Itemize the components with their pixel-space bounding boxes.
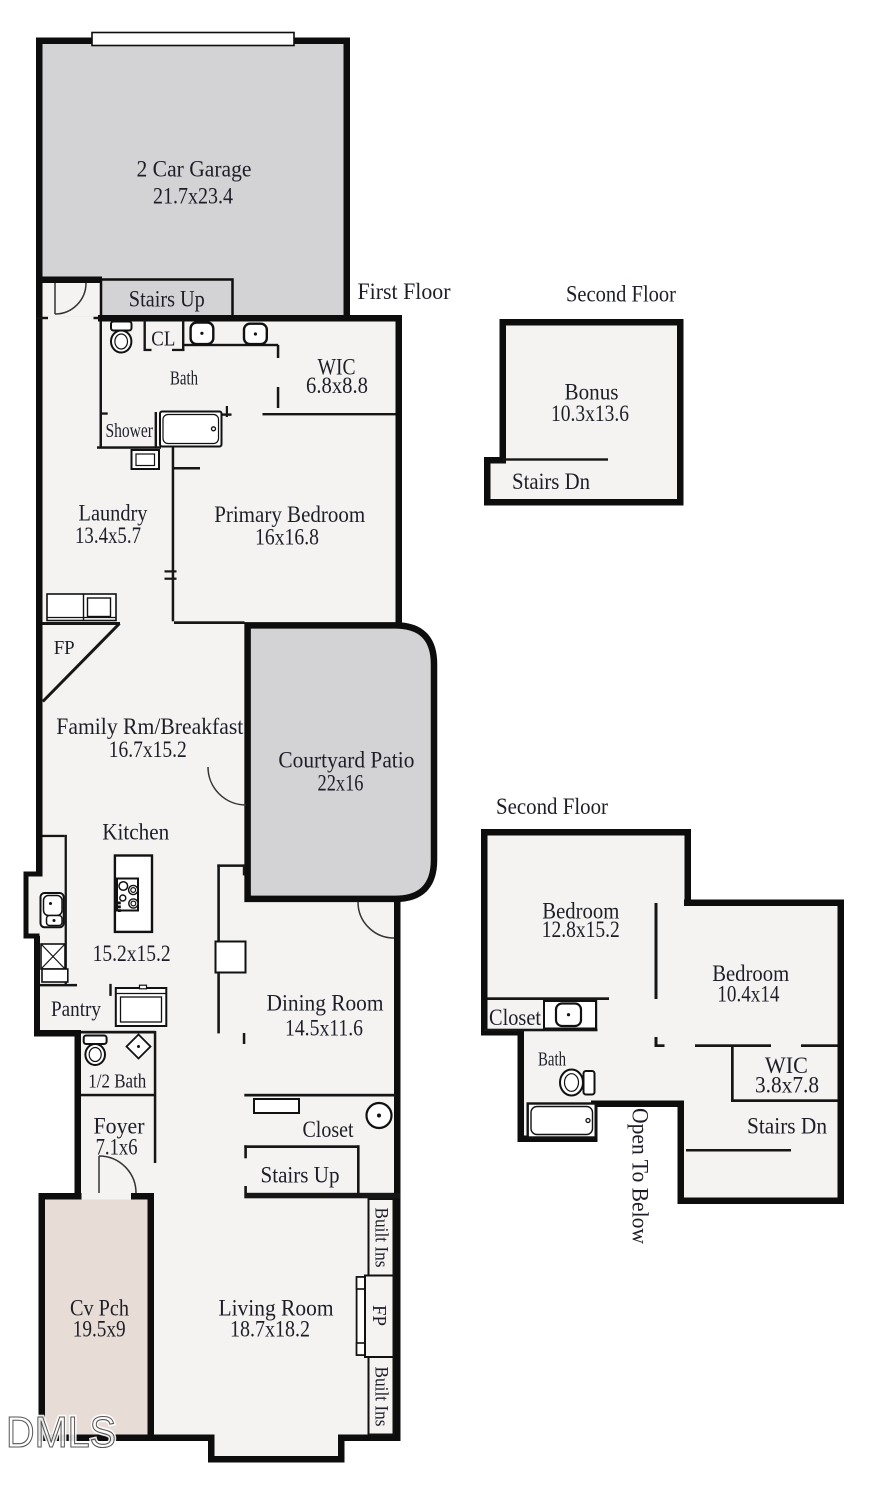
svg-text:Open To Below: Open To Below	[628, 1108, 653, 1244]
svg-text:Stairs Dn: Stairs Dn	[512, 469, 590, 494]
svg-text:Pantry: Pantry	[51, 996, 101, 1021]
svg-text:16.7x15.2: 16.7x15.2	[109, 737, 187, 762]
svg-text:Bath: Bath	[538, 1050, 566, 1071]
svg-text:Second Floor: Second Floor	[496, 794, 608, 819]
svg-text:Built Ins: Built Ins	[371, 1208, 392, 1268]
svg-text:Bath: Bath	[170, 369, 198, 390]
svg-text:21.7x23.4: 21.7x23.4	[153, 184, 233, 209]
svg-text:Family Rm/Breakfast: Family Rm/Breakfast	[56, 714, 244, 739]
svg-text:15.2x15.2: 15.2x15.2	[93, 941, 171, 966]
svg-text:22x16: 22x16	[318, 771, 364, 796]
svg-text:6.8x8.8: 6.8x8.8	[306, 373, 368, 398]
svg-text:1/2 Bath: 1/2 Bath	[88, 1070, 146, 1092]
svg-text:Kitchen: Kitchen	[102, 820, 169, 845]
svg-text:Stairs Dn: Stairs Dn	[747, 1114, 827, 1139]
svg-text:10.3x13.6: 10.3x13.6	[551, 401, 629, 426]
svg-text:Built Ins: Built Ins	[371, 1367, 392, 1427]
svg-text:First Floor: First Floor	[358, 279, 451, 304]
svg-text:Dining Room: Dining Room	[267, 991, 384, 1016]
svg-text:2 Car Garage: 2 Car Garage	[137, 157, 252, 182]
svg-text:Stairs Up: Stairs Up	[261, 1163, 340, 1188]
svg-text:CL: CL	[151, 326, 175, 350]
svg-text:13.4x5.7: 13.4x5.7	[75, 523, 141, 548]
svg-text:19.5x9: 19.5x9	[73, 1317, 126, 1342]
svg-text:Shower: Shower	[105, 421, 153, 442]
svg-text:7.1x6: 7.1x6	[96, 1135, 138, 1160]
svg-text:DMLS: DMLS	[6, 1408, 116, 1457]
svg-text:10.4x14: 10.4x14	[717, 982, 779, 1007]
svg-text:3.8x7.8: 3.8x7.8	[755, 1073, 819, 1098]
svg-text:FP: FP	[368, 1305, 389, 1326]
svg-text:16x16.8: 16x16.8	[255, 525, 319, 550]
svg-text:Stairs Up: Stairs Up	[129, 287, 205, 312]
svg-text:Courtyard Patio: Courtyard Patio	[278, 747, 414, 772]
svg-text:Laundry: Laundry	[79, 501, 148, 526]
svg-text:18.7x18.2: 18.7x18.2	[230, 1317, 310, 1342]
svg-text:Closet: Closet	[303, 1117, 355, 1142]
svg-text:FP: FP	[54, 638, 75, 659]
svg-text:12.8x15.2: 12.8x15.2	[542, 917, 620, 942]
svg-text:Primary Bedroom: Primary Bedroom	[214, 502, 365, 527]
svg-text:14.5x11.6: 14.5x11.6	[285, 1016, 363, 1041]
svg-text:Second Floor: Second Floor	[566, 282, 676, 307]
svg-text:Closet: Closet	[489, 1005, 542, 1030]
